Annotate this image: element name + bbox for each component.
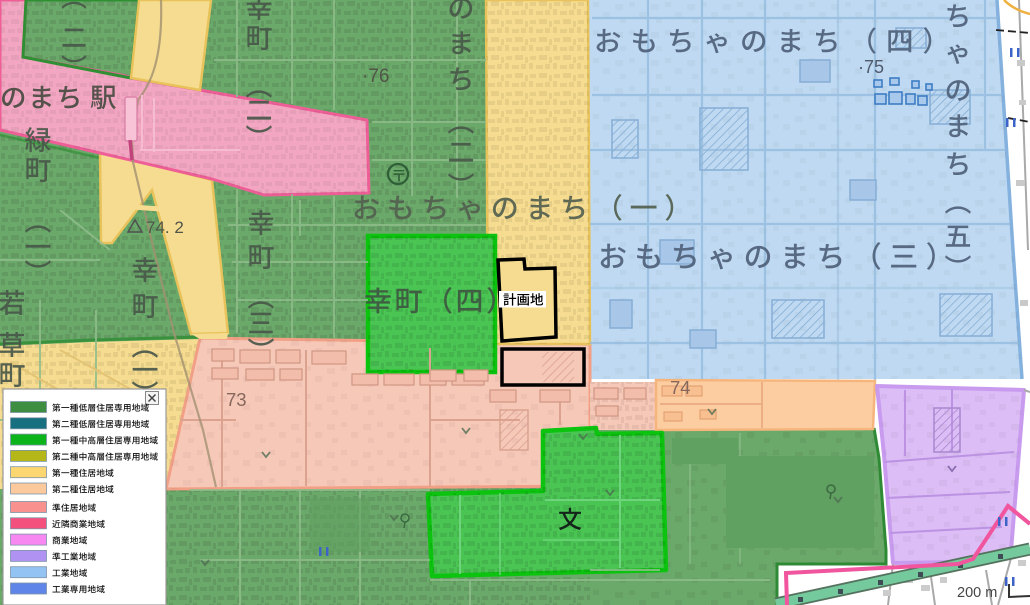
svg-text:·76: ·76 [362,66,389,87]
svg-text:200 m: 200 m [957,585,997,601]
svg-text:74. 2: 74. 2 [146,218,184,237]
svg-text:73: 73 [226,389,247,410]
svg-text:74: 74 [670,377,691,398]
svg-text:·75: ·75 [858,57,884,77]
